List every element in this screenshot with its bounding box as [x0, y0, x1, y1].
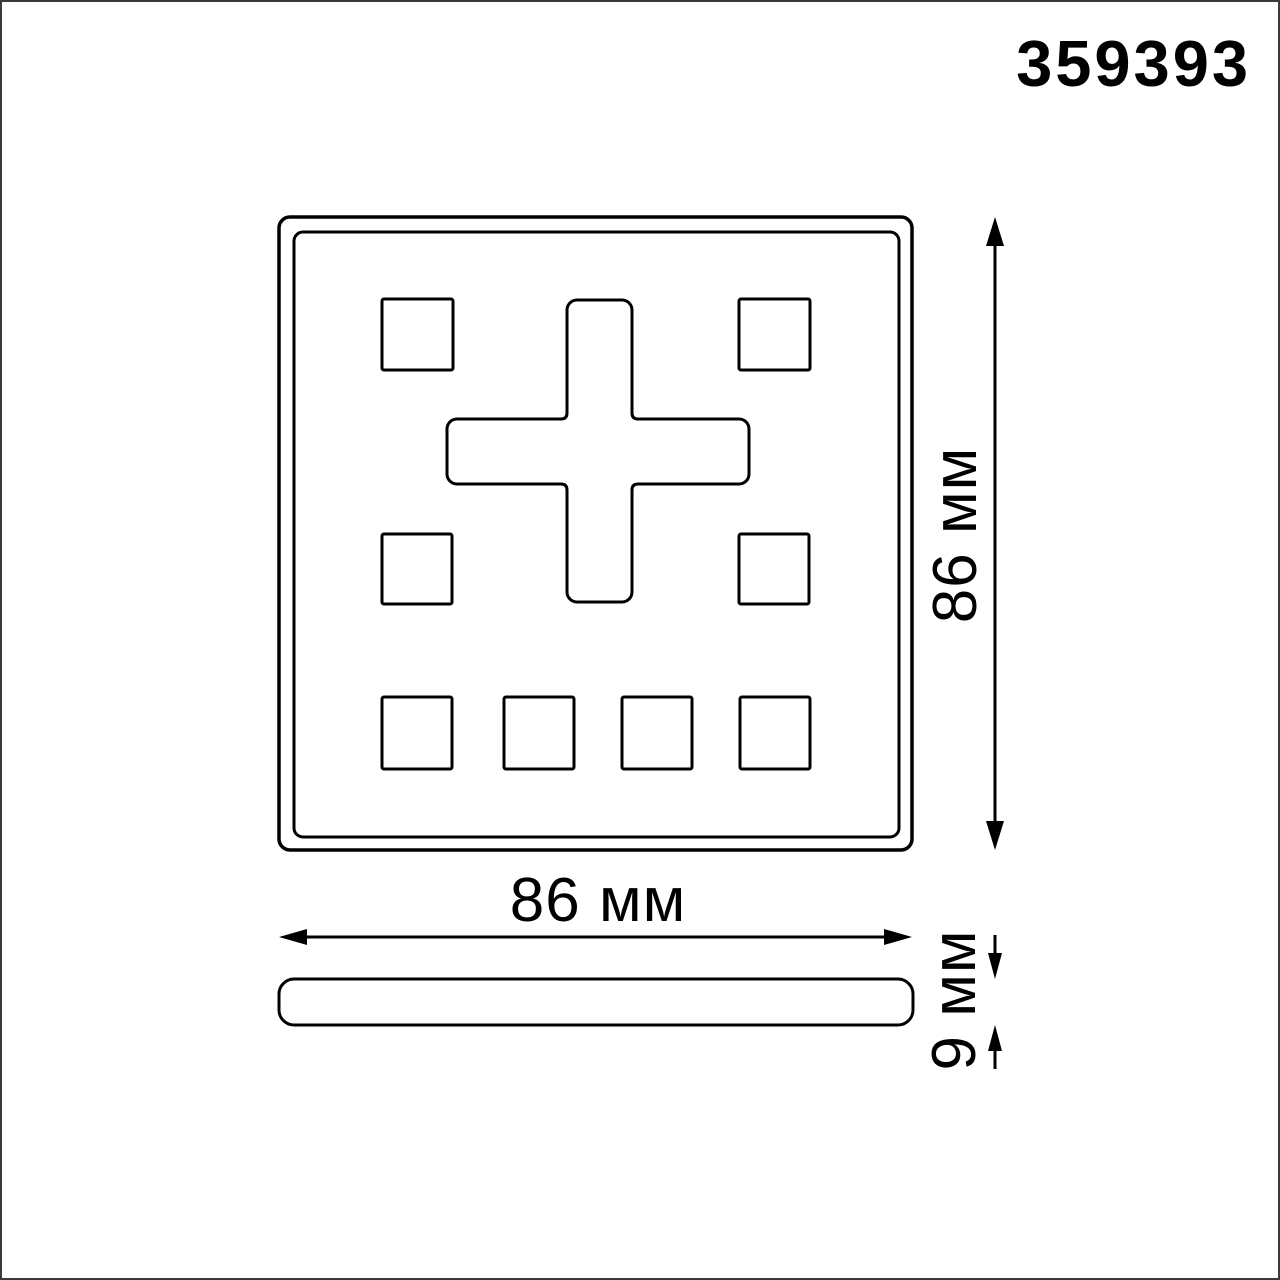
button-square-top-left [382, 299, 453, 370]
button-square-bottom-4 [740, 697, 810, 769]
drawing-page: 359393 86 мм 86 мм 9 мм [0, 0, 1280, 1280]
arrowhead-down-small-icon [988, 953, 1002, 979]
button-square-mid-left [382, 534, 452, 604]
arrowhead-left-icon [279, 929, 307, 945]
button-square-mid-right [739, 534, 809, 604]
arrowhead-up-small-icon [988, 1025, 1002, 1051]
arrowhead-down-icon [986, 821, 1004, 850]
thickness-dimension-arrow [988, 935, 1002, 1069]
button-square-bottom-3 [622, 697, 692, 769]
height-dimension-label: 86 мм [925, 447, 987, 623]
technical-drawing [2, 2, 1280, 1280]
button-square-top-right [739, 299, 810, 370]
button-square-bottom-1 [382, 697, 452, 769]
side-view-drawing [279, 979, 913, 1025]
article-number: 359393 [1016, 31, 1251, 96]
width-dimension-label: 86 мм [510, 870, 686, 932]
thickness-dimension-label: 9 мм [924, 930, 986, 1071]
side-profile-panel [279, 979, 913, 1025]
button-square-bottom-2 [504, 697, 574, 769]
arrowhead-up-icon [986, 217, 1004, 246]
arrowhead-right-icon [884, 929, 912, 945]
front-view-drawing [279, 217, 912, 850]
